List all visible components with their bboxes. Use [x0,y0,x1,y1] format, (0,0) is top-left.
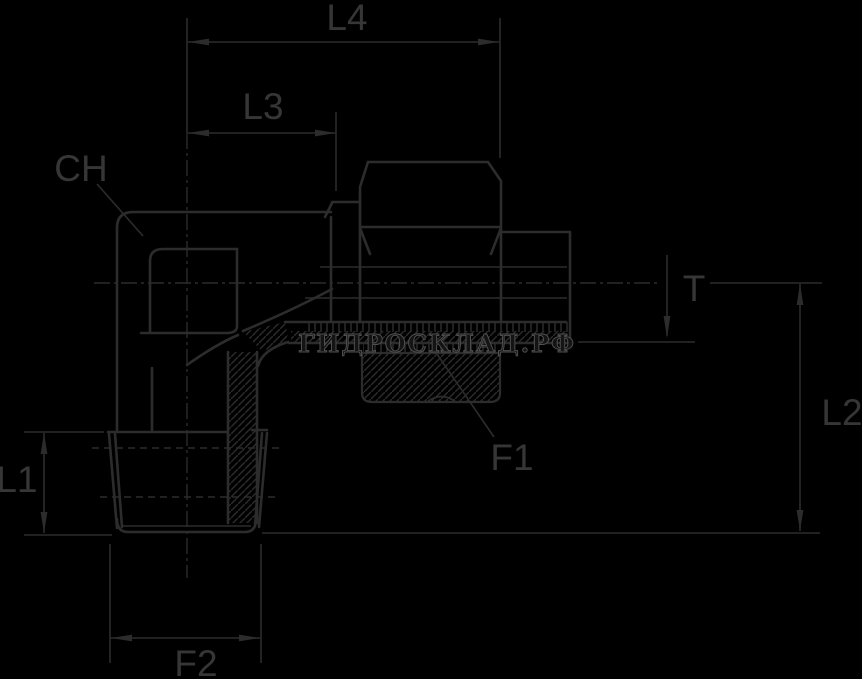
collar-outline [325,202,360,320]
l1-arrow-up [41,433,48,454]
dimension-t: T [578,255,705,342]
ch-leader-line [97,184,143,236]
l3-arrow-left [188,130,209,137]
t-arrow-down [664,316,671,338]
elbow-bend-hatch [243,322,289,351]
l4-arrow-right [478,39,499,46]
f2-arrow-right [239,635,260,642]
label-f2: F2 [174,643,217,679]
l1-arrow-down [41,512,48,533]
hex-nut-outline [360,162,501,320]
callout-ch: CH [54,148,143,236]
label-l2: L2 [821,392,862,433]
dimension-f2: F2 [110,544,261,679]
drawing-canvas: L4 L3 CH T L2 L1 [0,0,862,679]
fitting-technical-drawing: L4 L3 CH T L2 L1 [0,0,862,679]
dimension-l2: L2 [262,283,862,533]
l2-arrow-up [797,284,804,305]
label-t: T [683,268,706,309]
l3-arrow-right [315,130,336,137]
nut-lower-section [362,353,500,402]
label-l4: L4 [326,0,367,38]
body-counterbore [141,249,237,333]
l4-arrow-left [188,39,209,46]
label-f1: F1 [490,437,533,478]
label-l1: L1 [0,459,38,500]
dimension-l4: L4 [188,0,500,158]
dimension-l3: L3 [188,86,336,191]
l2-arrow-down [797,510,804,531]
label-ch: CH [54,148,107,189]
label-l3: L3 [242,86,283,127]
f2-arrow-left [111,635,132,642]
watermark-text: ГИДРОСКЛАД.РФ [298,329,576,358]
